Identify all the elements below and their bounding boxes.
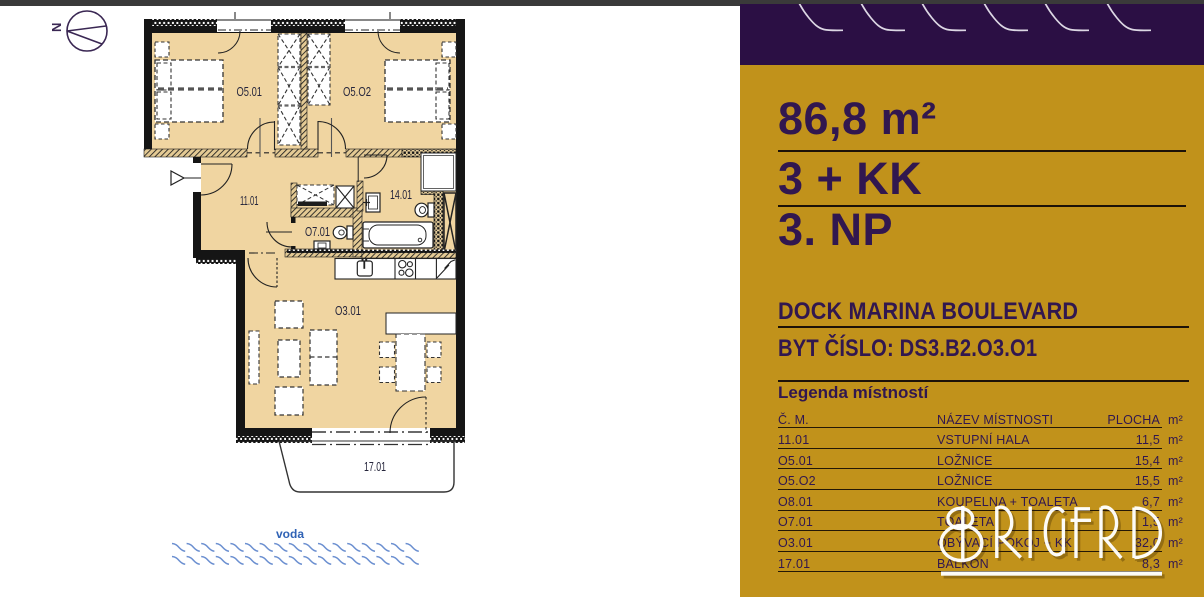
svg-text:N: N	[49, 23, 64, 32]
svg-text:voda: voda	[276, 527, 304, 541]
svg-text:17.01: 17.01	[364, 459, 386, 474]
svg-text:O5.O2: O5.O2	[343, 84, 371, 99]
svg-text:O5.01: O5.01	[237, 84, 263, 99]
svg-text:14.01: 14.01	[390, 187, 412, 202]
svg-text:O3.01: O3.01	[335, 303, 361, 318]
svg-text:O7.01: O7.01	[305, 224, 330, 239]
svg-text:11.01: 11.01	[240, 193, 259, 208]
